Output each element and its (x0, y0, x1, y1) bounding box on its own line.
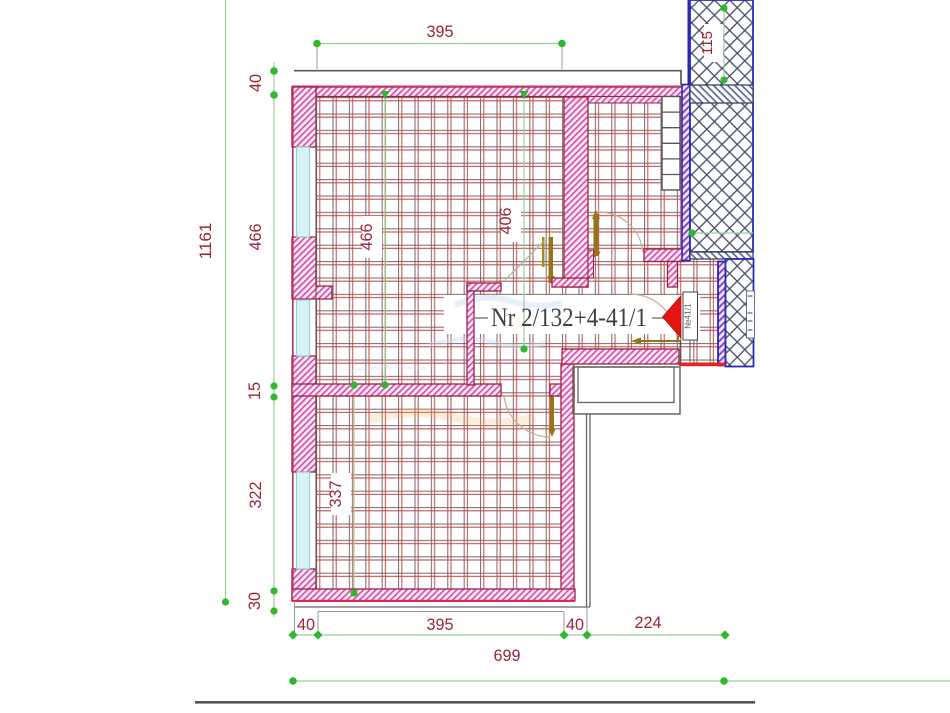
svg-text:337: 337 (327, 480, 345, 507)
svg-text:40: 40 (297, 616, 315, 634)
svg-text:699: 699 (493, 647, 520, 665)
svg-text:30: 30 (246, 592, 264, 610)
svg-text:1161: 1161 (196, 223, 215, 260)
svg-text:406: 406 (497, 207, 515, 234)
svg-text:40: 40 (247, 74, 265, 92)
svg-text:115: 115 (699, 31, 716, 55)
svg-text:395: 395 (426, 616, 453, 634)
svg-text:№41/1: №41/1 (682, 303, 692, 329)
svg-text:395: 395 (426, 23, 453, 41)
svg-text:466: 466 (247, 223, 265, 250)
svg-text:Nr 2/132+4-41/1: Nr 2/132+4-41/1 (491, 303, 647, 332)
svg-text:40: 40 (566, 616, 584, 634)
svg-text:224: 224 (634, 614, 661, 632)
svg-text:466: 466 (358, 223, 376, 250)
svg-text:15: 15 (246, 382, 264, 400)
svg-text:322: 322 (247, 481, 265, 508)
